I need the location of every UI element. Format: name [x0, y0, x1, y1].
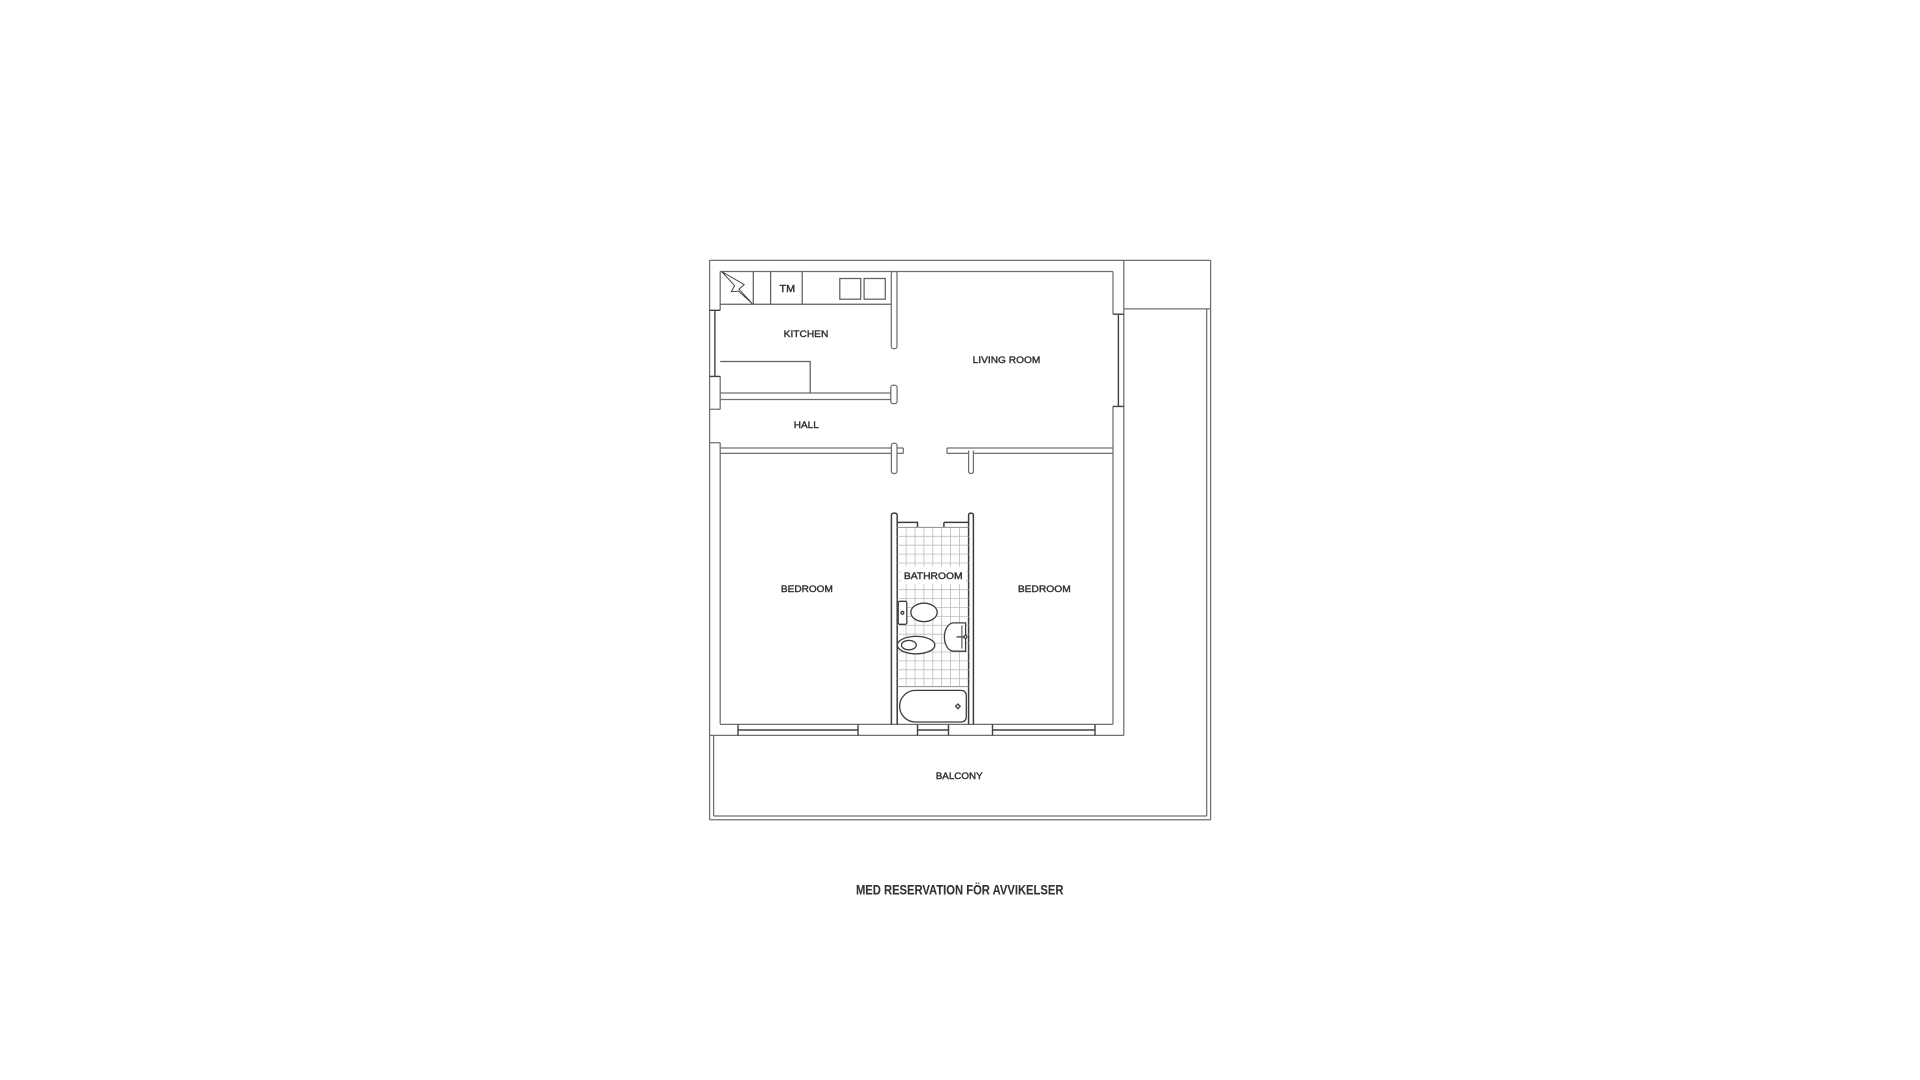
svg-text:BEDROOM: BEDROOM: [1018, 584, 1071, 595]
svg-text:BEDROOM: BEDROOM: [781, 584, 833, 595]
svg-text:LIVING ROOM: LIVING ROOM: [973, 355, 1041, 366]
svg-text:KITCHEN: KITCHEN: [784, 329, 829, 340]
svg-text:MED RESERVATION FÖR AVVIKELSER: MED RESERVATION FÖR AVVIKELSER: [856, 883, 1064, 898]
svg-text:TM: TM: [780, 284, 796, 295]
svg-text:BATHROOM: BATHROOM: [904, 571, 963, 582]
svg-text:HALL: HALL: [794, 420, 820, 431]
svg-text:BALCONY: BALCONY: [936, 771, 984, 782]
